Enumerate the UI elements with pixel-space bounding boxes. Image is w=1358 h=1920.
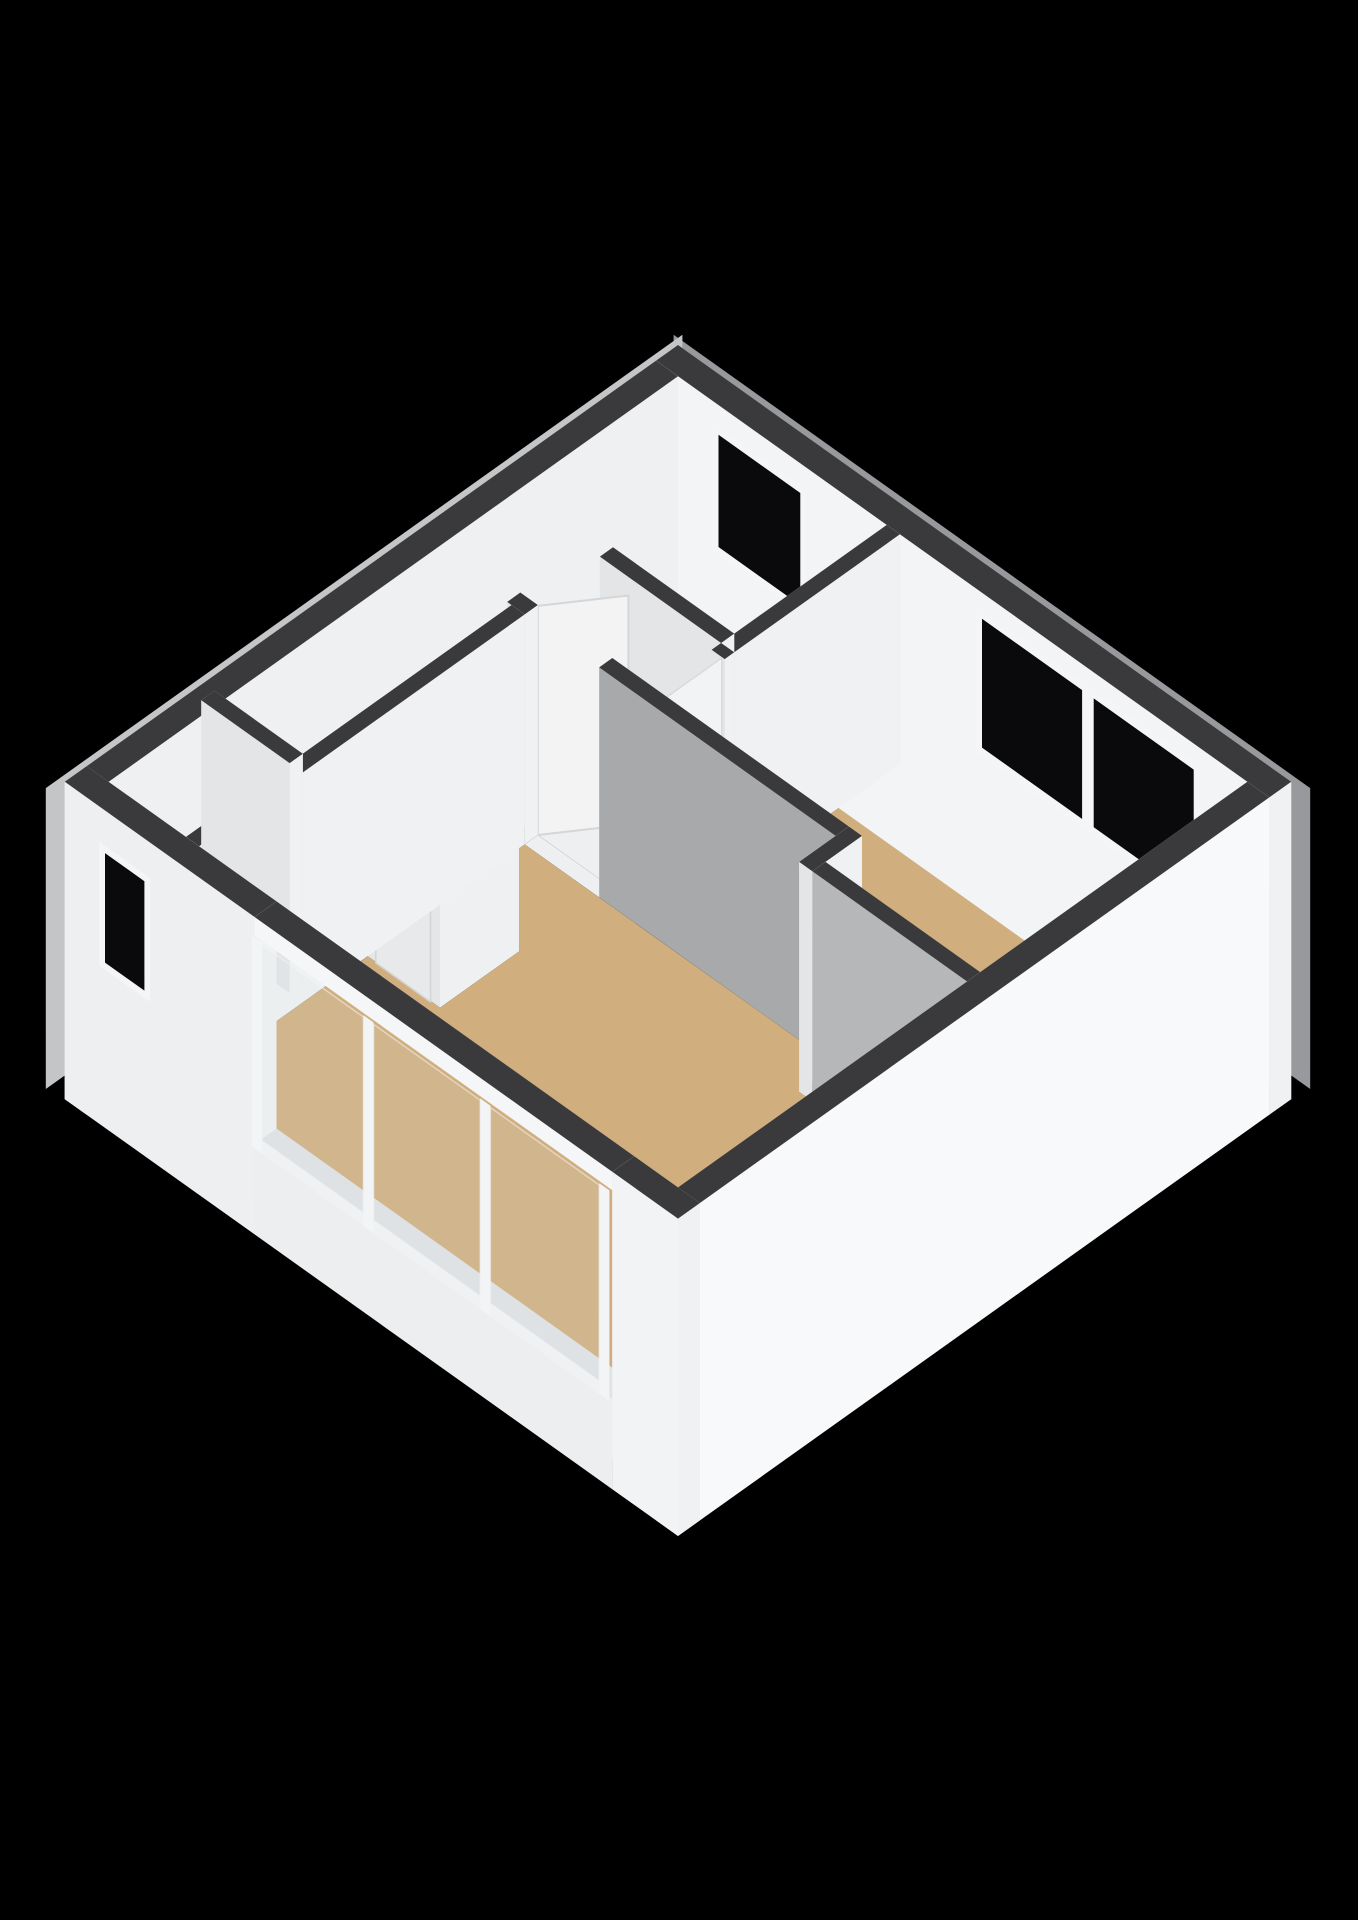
glazing-post xyxy=(252,936,262,1154)
floorplan-3d xyxy=(0,0,1358,1920)
glazing-post xyxy=(480,1098,490,1316)
glazing-post xyxy=(599,1183,609,1401)
wall-ext-sw-east xyxy=(612,1156,700,1536)
floorplan-stage xyxy=(0,0,1358,1920)
glazing-post xyxy=(363,1015,373,1233)
